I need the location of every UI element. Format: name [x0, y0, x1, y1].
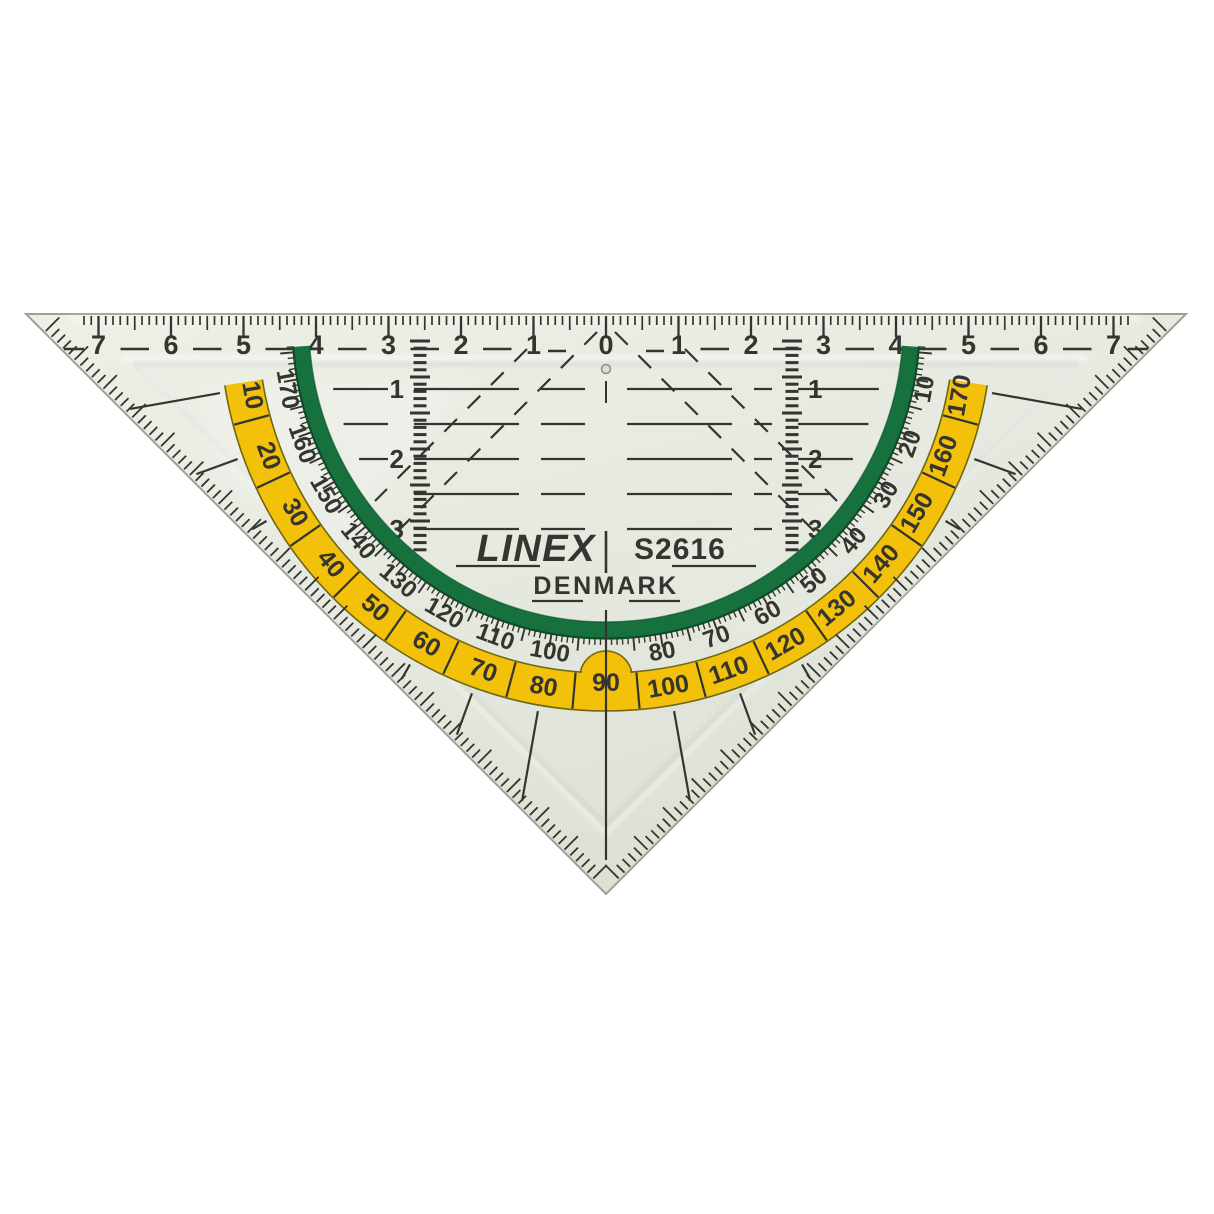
degree-tick — [918, 352, 932, 353]
country-text: DENMARK — [533, 572, 678, 600]
ruler-number: 5 — [236, 330, 251, 360]
protractor-outer-label-80: 80 — [528, 670, 560, 702]
ruler-number: 5 — [961, 330, 976, 360]
vertical-scale-label-left: 2 — [390, 444, 404, 474]
degree-tick — [916, 369, 923, 370]
degree-tick — [280, 352, 294, 353]
ruler-number: 0 — [598, 330, 613, 360]
degree-tick — [288, 358, 295, 359]
ruler-number: 2 — [743, 330, 758, 360]
protractor-inner-label-80: 80 — [647, 636, 678, 667]
ruler-number: 3 — [816, 330, 831, 360]
ruler-number: 7 — [1106, 330, 1121, 360]
brand-text: LINEX — [477, 528, 598, 570]
vertical-scale-label-right: 1 — [808, 374, 822, 404]
ruler-number: 2 — [453, 330, 468, 360]
product-photo: 7654321012345671122331701601501401301201… — [0, 0, 1214, 1214]
degree-tick — [639, 636, 640, 643]
ruler-numbers: 765432101234567 — [91, 330, 1121, 360]
protractor-inner-label-10: 10 — [909, 374, 940, 405]
degree-tick — [288, 363, 295, 364]
protractor-outer-label-10: 10 — [236, 379, 268, 411]
ruler-number: 6 — [163, 330, 178, 360]
vertical-scale-label-left: 1 — [390, 374, 404, 404]
vertical-scale-label-right: 2 — [808, 444, 822, 474]
degree-tick — [644, 636, 645, 643]
ruler-number: 1 — [526, 330, 541, 360]
degree-tick — [633, 637, 634, 651]
ruler-number: 3 — [381, 330, 396, 360]
degree-tick — [917, 363, 924, 364]
set-square-svg: 7654321012345671122331701601501401301201… — [0, 0, 1214, 1214]
degree-tick — [917, 358, 924, 359]
degree-tick — [578, 637, 579, 651]
ruler-number: 1 — [671, 330, 686, 360]
model-text: S2616 — [634, 533, 726, 566]
center-hole-icon — [602, 365, 611, 374]
ruler-number: 6 — [1033, 330, 1048, 360]
degree-tick — [573, 636, 574, 643]
ruler-number: 7 — [91, 330, 106, 360]
